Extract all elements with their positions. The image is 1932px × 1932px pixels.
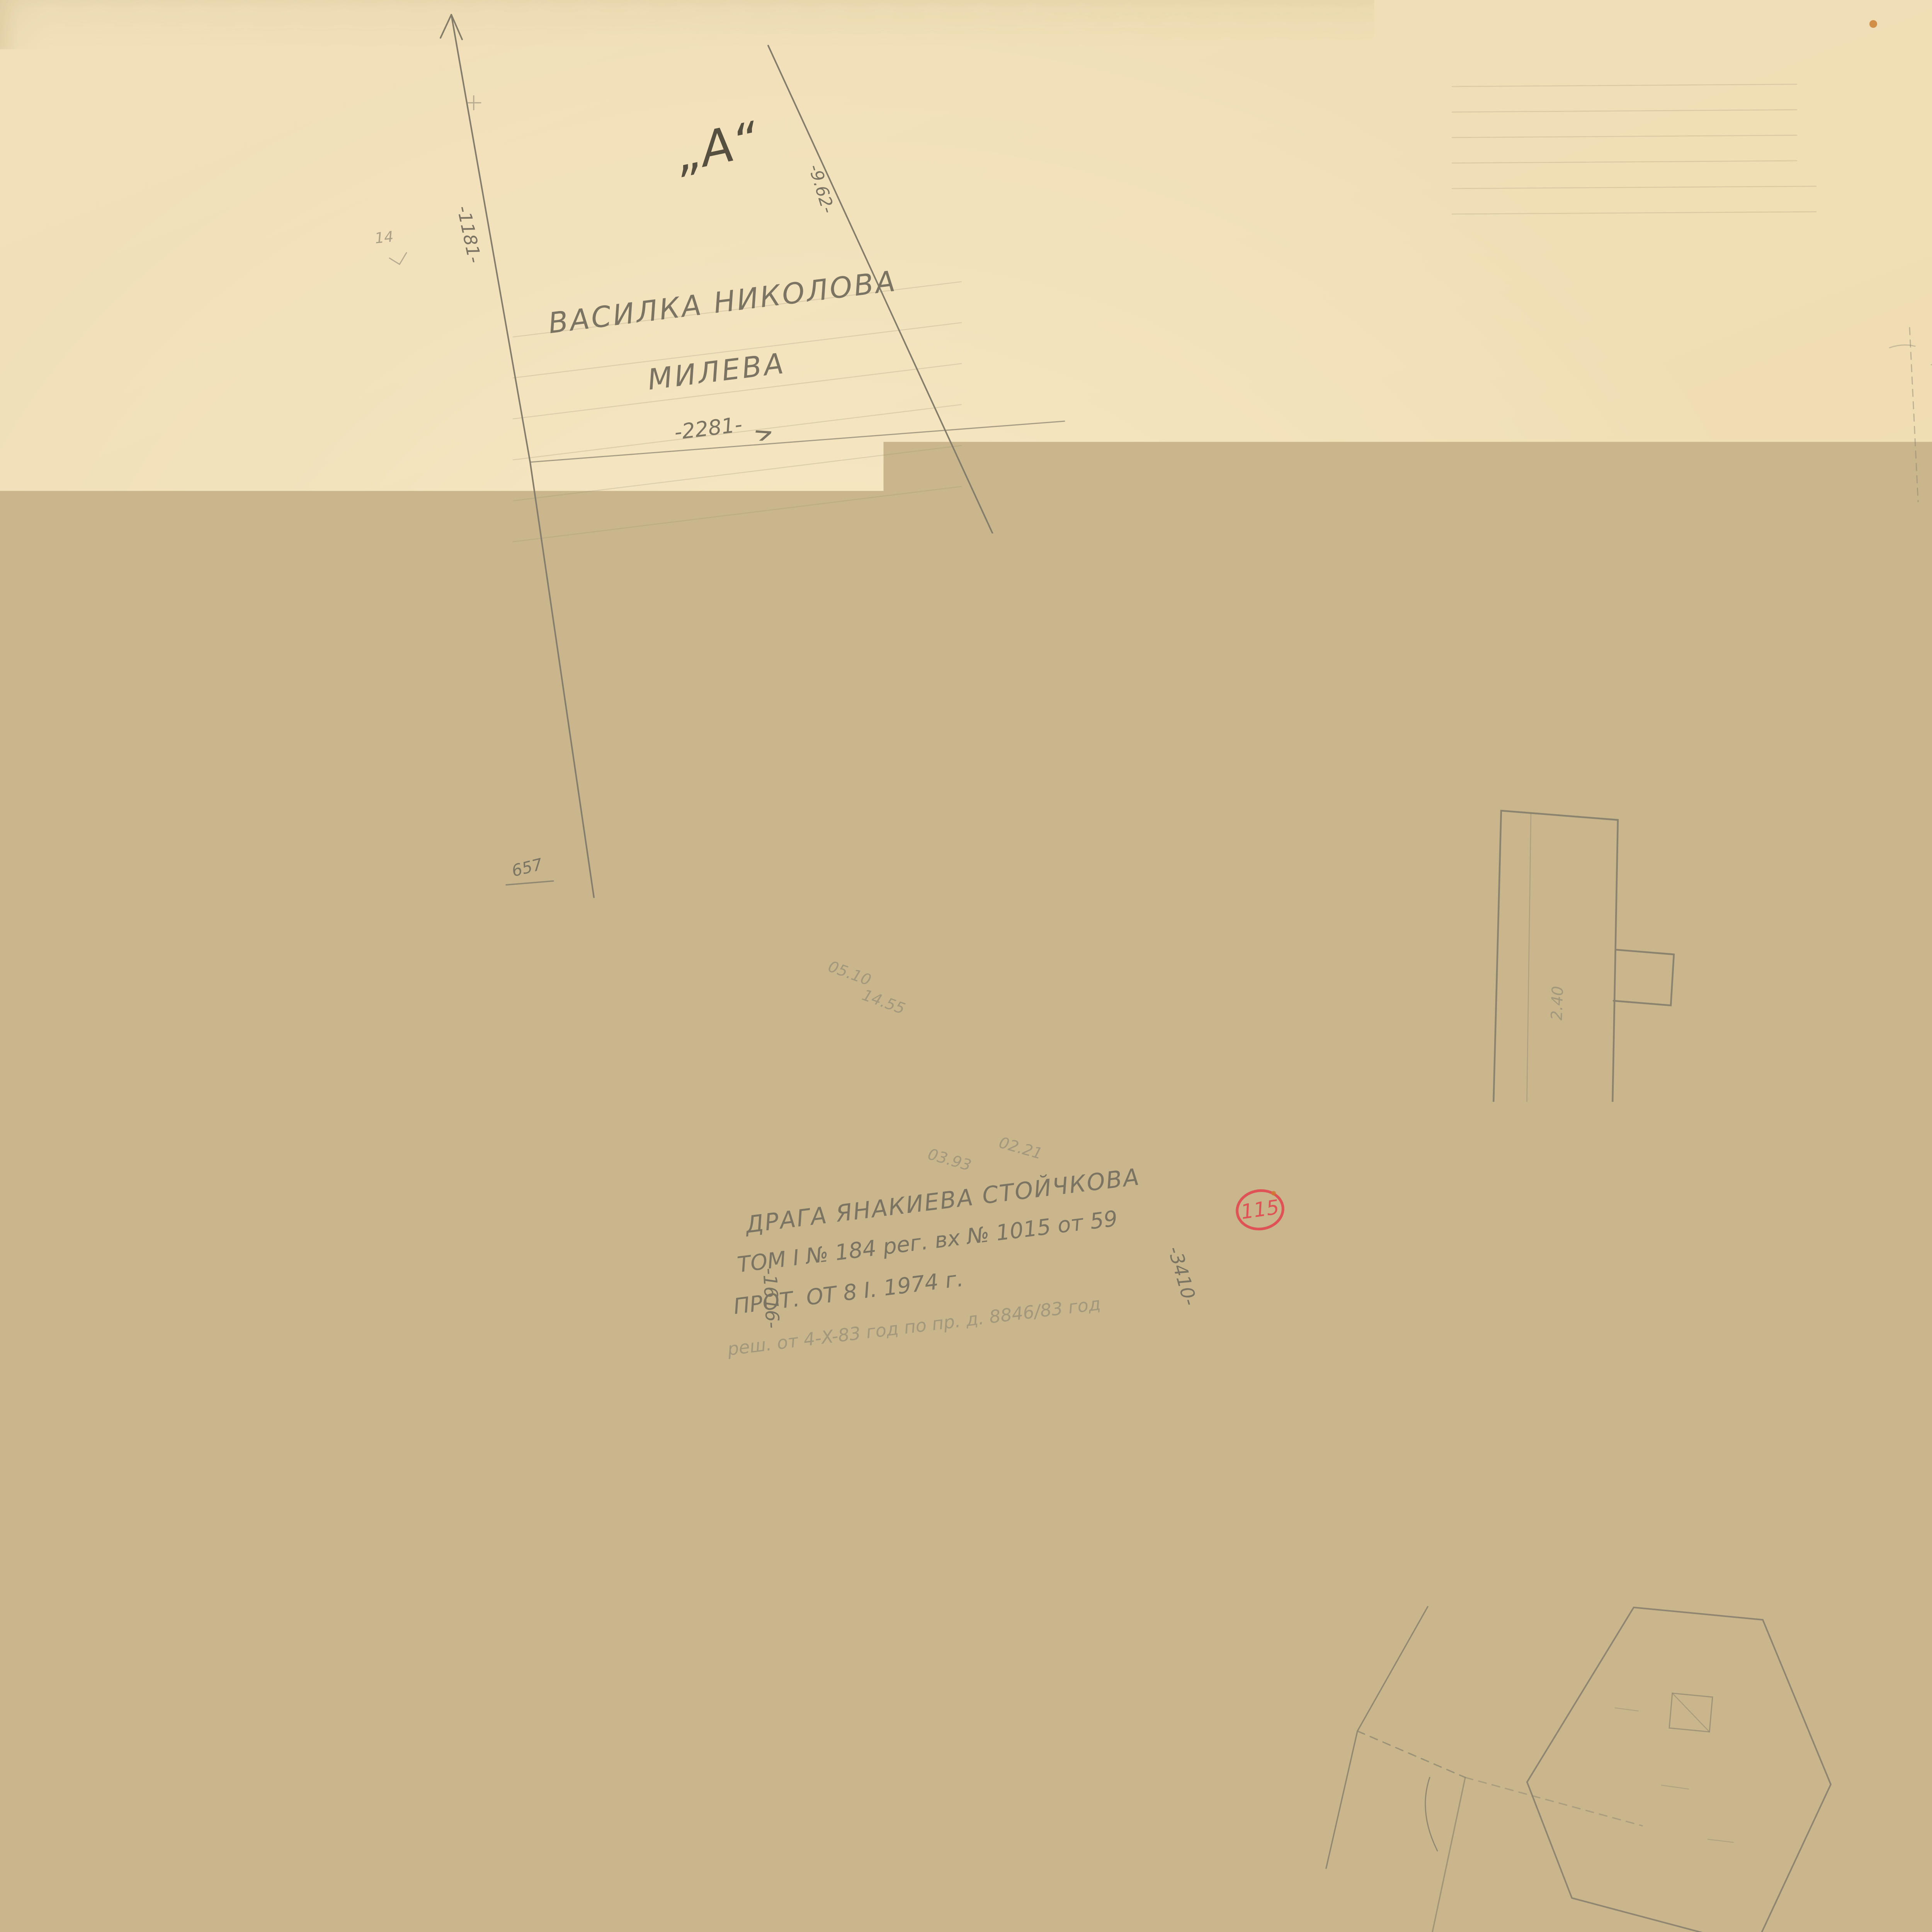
stain: [1692, 147, 1777, 201]
meas-n-mark: N: [1808, 1735, 1826, 1758]
scanned-sketch-paper: 54/482 Полигон – 9 с. Михайлово М. 1:250…: [0, 0, 1932, 1932]
meas-2-40: 2.40: [1549, 986, 1566, 1020]
page-title: Полигон – 9: [1553, 76, 1825, 115]
building-main: [1490, 811, 1674, 1233]
stain: [1271, 1191, 1276, 1196]
boundary-line-west: [440, 15, 594, 897]
meas-z-mark: Z: [751, 427, 771, 456]
parcel-outline: [580, 897, 1428, 1634]
page-subtitle: с. Михайлово: [1562, 121, 1821, 155]
survey-lines: [0, 0, 1932, 1932]
junction-lines: [1326, 1607, 1642, 1932]
dashed-line-inner: [594, 897, 1195, 1143]
meas-14: 14: [374, 229, 394, 247]
faint-dashed-vertical: [1910, 328, 1918, 502]
building-main-inner: [1525, 813, 1531, 1226]
boundary-line-diagonal: [768, 46, 1381, 1794]
parcel-number: 115: [1240, 1196, 1281, 1224]
building-small: [1287, 954, 1345, 1024]
faint-field-notes: [162, 345, 1932, 1020]
boundary-line-north: [530, 421, 1065, 462]
stain: [1869, 20, 1877, 28]
dashed-line-west: [117, 897, 594, 931]
parcel-pentagon: [1527, 1607, 1831, 1932]
meas-1410: -1410-: [796, 1540, 858, 1565]
stain: [1350, 1832, 1355, 1836]
meas-1616: -1616-: [760, 1267, 782, 1329]
